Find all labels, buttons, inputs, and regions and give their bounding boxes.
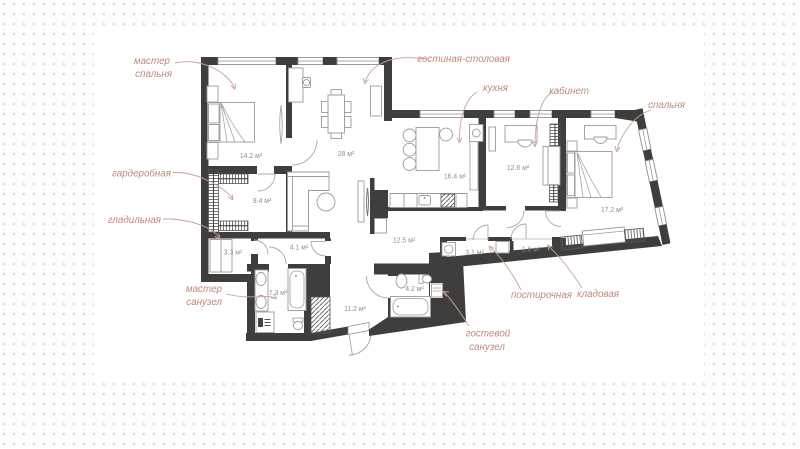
svg-text:7.3 м²: 7.3 м²: [269, 290, 288, 297]
svg-text:17.2 м²: 17.2 м²: [601, 207, 624, 214]
svg-text:санузел: санузел: [186, 297, 222, 308]
svg-text:кабинет: кабинет: [549, 86, 589, 97]
svg-text:16.4 м²: 16.4 м²: [444, 174, 467, 181]
svg-text:мастер: мастер: [134, 56, 171, 67]
svg-text:гардеробная: гардеробная: [112, 169, 172, 180]
svg-text:3.3 м²: 3.3 м²: [224, 250, 243, 257]
svg-text:мастер: мастер: [186, 284, 223, 295]
svg-text:3.1 м²: 3.1 м²: [465, 250, 484, 257]
svg-text:4.2 м²: 4.2 м²: [405, 286, 424, 293]
svg-text:санузел: санузел: [469, 342, 505, 353]
svg-text:гладильная: гладильная: [108, 215, 162, 226]
svg-text:14.2 м²: 14.2 м²: [240, 153, 263, 160]
svg-text:11.2 м²: 11.2 м²: [344, 306, 367, 313]
svg-text:спальня: спальня: [135, 69, 173, 80]
svg-text:9.4 м²: 9.4 м²: [253, 198, 272, 205]
svg-text:12.5 м²: 12.5 м²: [393, 238, 416, 245]
svg-text:28 м²: 28 м²: [338, 151, 355, 158]
svg-text:постирочная: постирочная: [511, 290, 573, 301]
svg-text:спальня: спальня: [648, 100, 686, 111]
svg-text:1.6 м²: 1.6 м²: [522, 247, 541, 254]
svg-text:кухня: кухня: [483, 83, 509, 94]
svg-text:кладовая: кладовая: [577, 289, 620, 300]
svg-text:гостевой: гостевой: [466, 329, 511, 340]
svg-text:4.1 м²: 4.1 м²: [290, 245, 309, 252]
svg-text:12.6 м²: 12.6 м²: [507, 165, 530, 172]
svg-text:гостиная-столовая: гостиная-столовая: [417, 54, 511, 65]
